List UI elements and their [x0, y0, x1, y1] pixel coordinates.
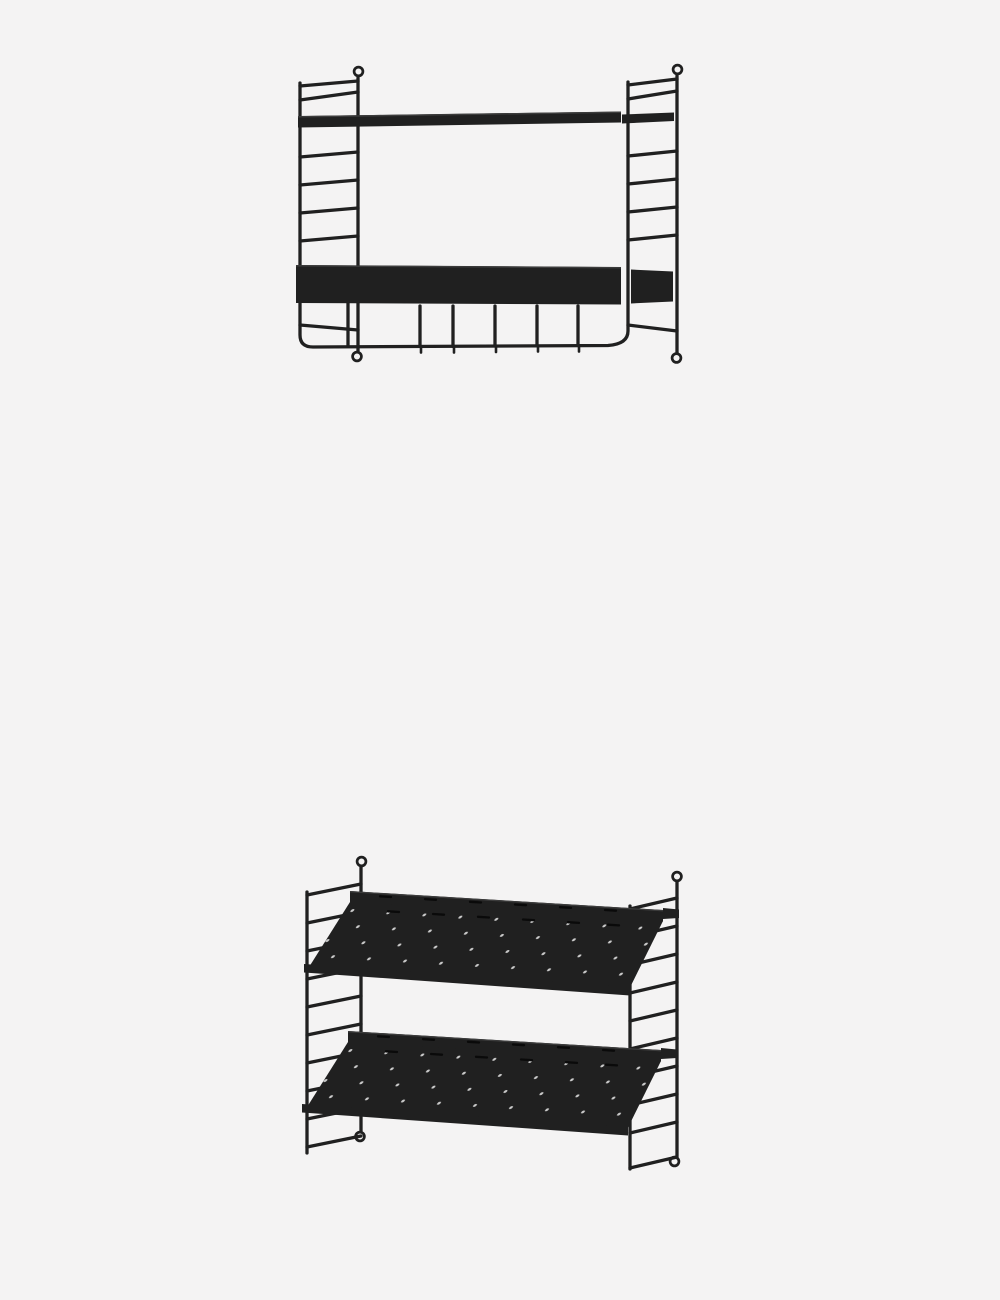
mounting-eyelets [353, 65, 682, 362]
hook-rail-dividers [420, 306, 578, 347]
shoe-shelf-drawing [285, 845, 705, 1180]
product-gallery [0, 0, 1000, 1300]
eyelet-top-left-icon [354, 67, 363, 76]
wall-shelf-wire-frame [300, 65, 682, 362]
eyelet-bottom-left-icon [353, 352, 362, 361]
shoe-shelf-bottom [302, 1031, 677, 1136]
top-shelf-back-section [622, 113, 674, 124]
eyelet-bottom-right-icon [672, 354, 681, 363]
high-edge-shelf-side-section [631, 270, 673, 304]
edge-highlights [296, 112, 621, 267]
eyelet-bottom-right-icon [670, 1157, 679, 1166]
wall-shelf-drawing [280, 55, 700, 375]
shoe-shelves [302, 891, 679, 1136]
shelf-right-bracket [663, 908, 679, 919]
product-image-shoe-shelf[interactable] [285, 845, 705, 1180]
eyelet-top-right-icon [673, 65, 682, 74]
eyelet-top-right-icon [673, 872, 682, 881]
eyelet-top-left-icon [357, 857, 366, 866]
product-image-wall-shelf[interactable] [280, 55, 700, 375]
high-edge-shelf [296, 265, 621, 305]
